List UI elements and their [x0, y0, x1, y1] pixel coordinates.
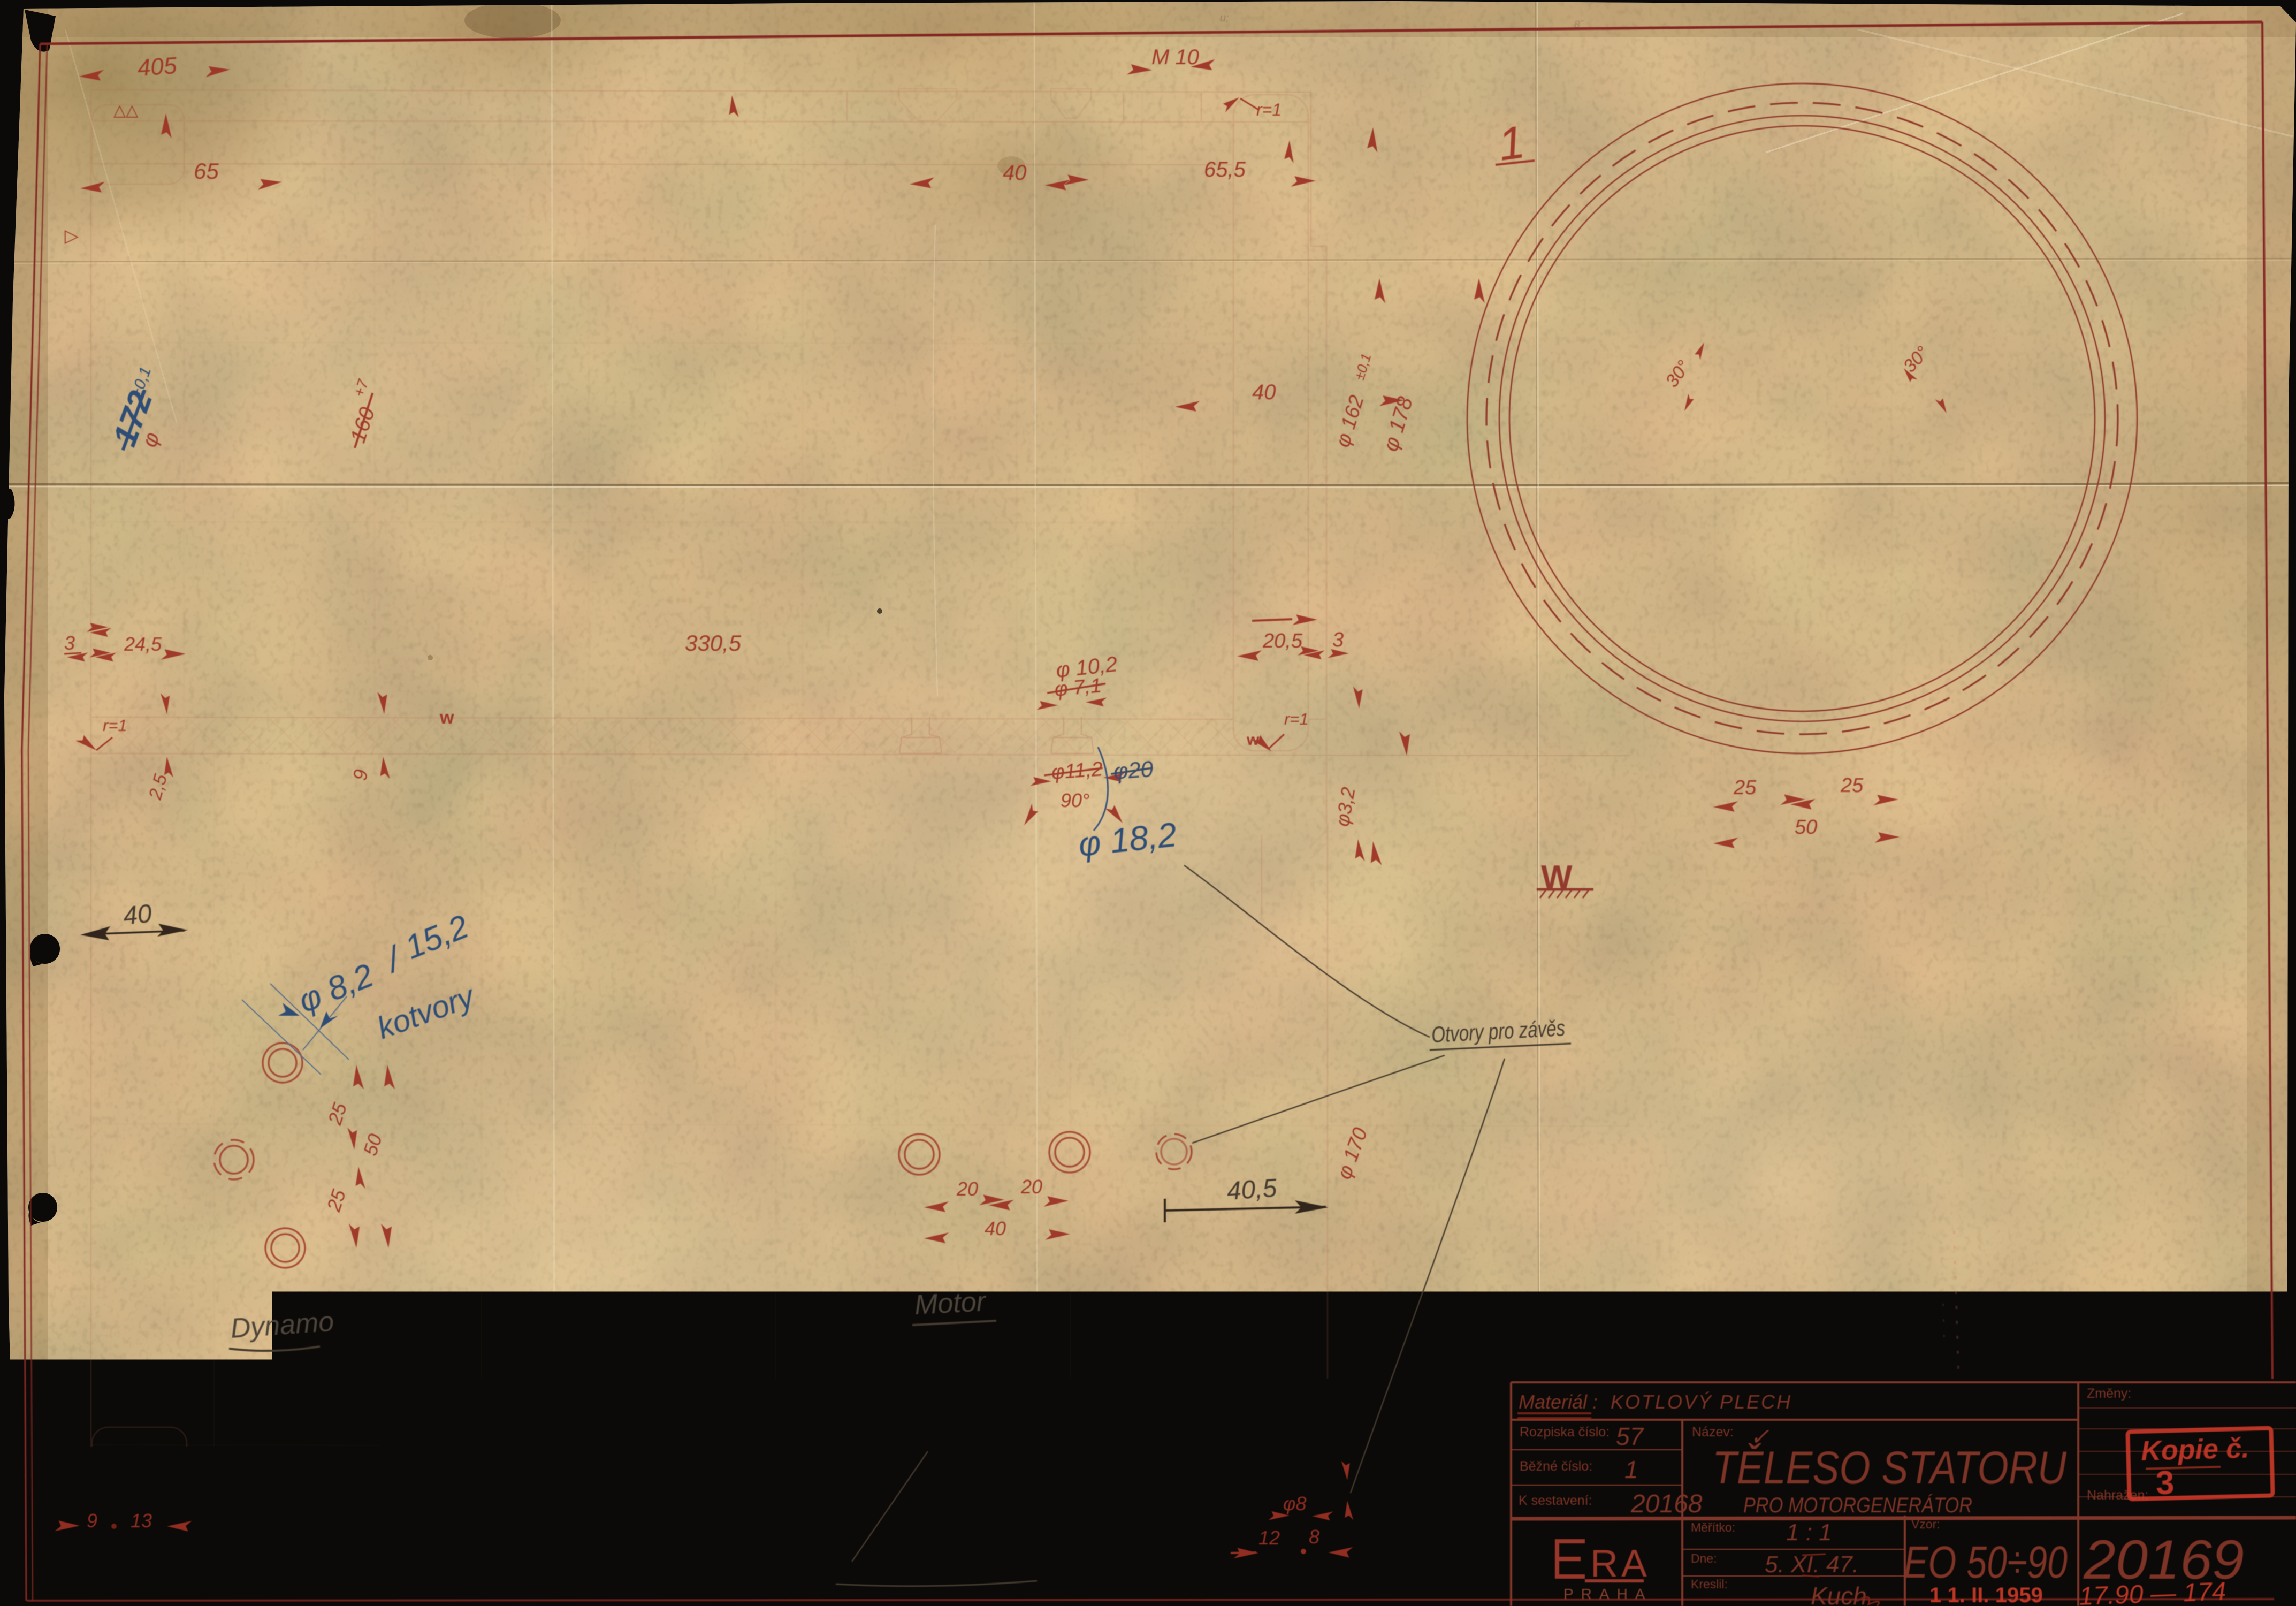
- svg-text:330,5: 330,5: [685, 630, 742, 656]
- svg-text:Měřítko:: Měřítko:: [1691, 1520, 1735, 1534]
- svg-text:20168: 20168: [1630, 1490, 1703, 1518]
- svg-text:24,5: 24,5: [124, 633, 162, 655]
- svg-text:PRAHA: PRAHA: [1563, 1586, 1652, 1602]
- svg-text:1 1. II. 1959: 1 1. II. 1959: [1929, 1584, 2043, 1606]
- svg-text:Kopie č.: Kopie č.: [2141, 1433, 2250, 1467]
- svg-text:Rozpiska číslo:: Rozpiska číslo:: [1520, 1425, 1610, 1440]
- svg-text:12: 12: [1258, 1527, 1280, 1549]
- svg-text:KOTLOVÝ PLECH: KOTLOVÝ PLECH: [1611, 1391, 1792, 1413]
- svg-text:△: △: [63, 230, 83, 245]
- svg-text:w: w: [439, 707, 454, 728]
- svg-text:13: 13: [131, 1510, 152, 1532]
- svg-text:r=1: r=1: [103, 716, 127, 735]
- svg-text:TĚLESO STATORU: TĚLESO STATORU: [1712, 1442, 2067, 1494]
- svg-text:8: 8: [1309, 1526, 1319, 1548]
- svg-text:20,5: 20,5: [1262, 630, 1303, 652]
- svg-text:K sestavení:: K sestavení:: [1519, 1493, 1592, 1508]
- svg-text:1: 1: [1624, 1456, 1638, 1483]
- svg-text:40: 40: [1252, 380, 1276, 404]
- svg-text:φ8: φ8: [1283, 1493, 1307, 1514]
- svg-text:M 10: M 10: [1151, 45, 1199, 69]
- svg-text:1 : 1: 1 : 1: [1786, 1519, 1832, 1546]
- svg-text:40: 40: [985, 1217, 1006, 1239]
- svg-text:EO 50÷90: EO 50÷90: [1904, 1537, 2068, 1587]
- svg-text:3: 3: [64, 632, 75, 654]
- svg-text:8ˇ: 8ˇ: [1574, 19, 1584, 31]
- svg-text:50: 50: [1795, 816, 1817, 839]
- svg-text:w: w: [1246, 731, 1260, 749]
- svg-text:20: 20: [1020, 1176, 1042, 1198]
- svg-text:90°: 90°: [1061, 789, 1089, 811]
- svg-text:Materiál :: Materiál :: [1519, 1391, 1598, 1413]
- svg-text:3: 3: [1332, 629, 1344, 651]
- svg-text:r=1: r=1: [1284, 710, 1309, 728]
- svg-text:Běžné číslo:: Běžné číslo:: [1520, 1459, 1592, 1474]
- svg-text:Motor: Motor: [914, 1286, 988, 1321]
- svg-text:57: 57: [1616, 1422, 1644, 1450]
- svg-text:Dne:: Dne:: [1691, 1551, 1717, 1565]
- svg-text:r=1: r=1: [1256, 100, 1282, 119]
- svg-text:RA: RA: [1590, 1542, 1650, 1585]
- svg-text:Vzor:: Vzor:: [1911, 1517, 1940, 1531]
- svg-text:u;: u;: [1220, 12, 1229, 24]
- svg-text:65,5: 65,5: [1204, 158, 1246, 181]
- svg-text:40: 40: [1003, 161, 1027, 185]
- svg-text:40: 40: [122, 900, 154, 931]
- svg-text:Kreslil:: Kreslil:: [1691, 1577, 1728, 1591]
- svg-text:PRO MOTORGENERÁTOR: PRO MOTORGENERÁTOR: [1743, 1493, 1972, 1517]
- svg-text:Změny:: Změny:: [2087, 1386, 2131, 1401]
- svg-text:3: 3: [2155, 1464, 2175, 1502]
- svg-text:Název:: Název:: [1692, 1425, 1734, 1440]
- svg-text:17.90 — 174: 17.90 — 174: [2079, 1577, 2227, 1606]
- svg-text:△△: △△: [113, 102, 138, 119]
- svg-text:405: 405: [136, 52, 178, 81]
- svg-text:65: 65: [194, 158, 219, 184]
- svg-text:40,5: 40,5: [1226, 1174, 1278, 1206]
- svg-text:25: 25: [1733, 777, 1757, 799]
- svg-text:Kuch: Kuch: [1811, 1582, 1867, 1606]
- svg-text:9: 9: [87, 1510, 97, 1532]
- svg-text:25: 25: [1840, 774, 1864, 797]
- svg-text:20: 20: [956, 1178, 978, 1200]
